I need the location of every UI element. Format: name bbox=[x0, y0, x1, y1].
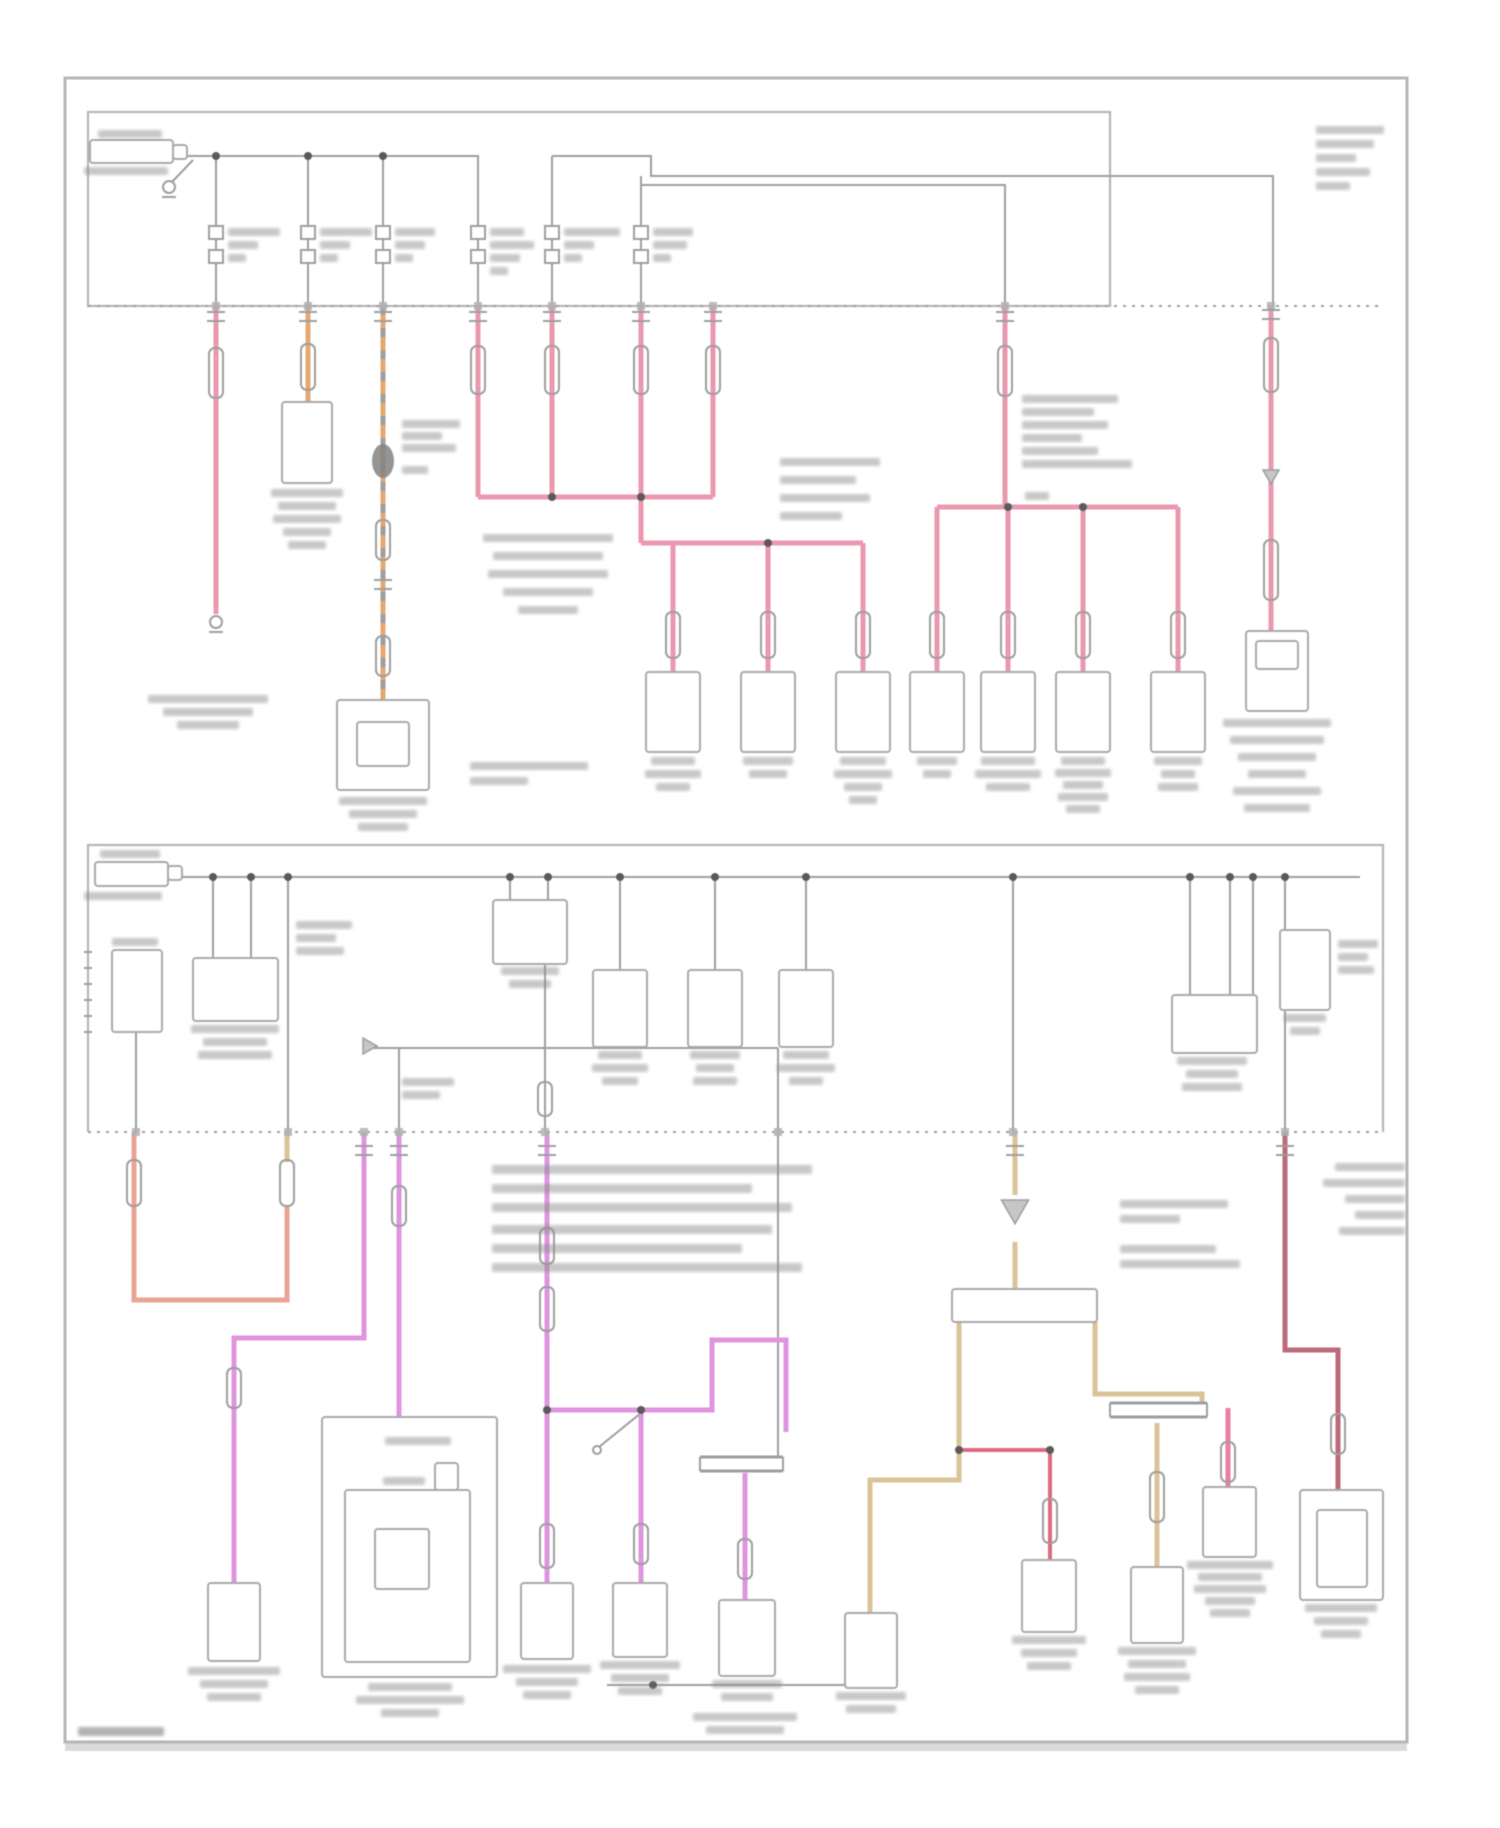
label-text-blurred bbox=[1025, 492, 1049, 500]
switch-contact-icon bbox=[593, 1446, 601, 1454]
label-text-blurred bbox=[653, 228, 693, 236]
fuse-icon bbox=[209, 250, 223, 263]
label-text-blurred bbox=[381, 1709, 439, 1717]
label-text-blurred bbox=[100, 850, 160, 858]
label-text-blurred bbox=[503, 1665, 591, 1673]
fuse-icon bbox=[376, 250, 390, 263]
schematic-wire-gray bbox=[641, 185, 1005, 306]
label-text-blurred bbox=[177, 721, 239, 729]
label-text-blurred bbox=[846, 1705, 896, 1713]
label-text-blurred bbox=[651, 757, 695, 765]
component-box bbox=[1256, 641, 1298, 669]
component-box bbox=[741, 672, 795, 752]
label-text-blurred bbox=[368, 1683, 452, 1691]
label-text-blurred bbox=[834, 770, 892, 778]
junction-dot bbox=[1046, 1446, 1054, 1454]
ground-icon bbox=[163, 181, 175, 193]
label-text-blurred bbox=[358, 823, 408, 831]
connector-arrow-icon bbox=[1001, 1200, 1028, 1224]
component-box bbox=[910, 672, 964, 752]
fuse-block-section-box bbox=[88, 112, 1110, 306]
label-text-blurred bbox=[492, 1263, 802, 1272]
label-text-blurred bbox=[493, 552, 603, 560]
component-box bbox=[375, 1529, 429, 1589]
label-text-blurred bbox=[191, 1025, 279, 1033]
label-text-blurred bbox=[600, 1661, 680, 1669]
schematic-wire-gray bbox=[599, 1413, 641, 1447]
junction-dot bbox=[209, 873, 217, 881]
component-box bbox=[493, 900, 567, 964]
label-text-blurred bbox=[296, 921, 352, 929]
terminal-mark bbox=[548, 302, 556, 310]
label-text-blurred bbox=[503, 588, 593, 596]
label-text-blurred bbox=[1022, 460, 1132, 468]
label-text-blurred bbox=[1022, 408, 1094, 416]
label-text-blurred bbox=[986, 783, 1030, 791]
label-text-blurred bbox=[320, 241, 350, 249]
terminal-mark bbox=[379, 302, 387, 310]
label-text-blurred bbox=[356, 1696, 464, 1704]
circuit-wire-magenta bbox=[641, 1340, 786, 1432]
label-text-blurred bbox=[490, 267, 508, 275]
terminal-mark bbox=[474, 302, 482, 310]
label-text-blurred bbox=[203, 1038, 267, 1046]
label-text-blurred bbox=[981, 757, 1035, 765]
label-text-blurred bbox=[207, 1693, 261, 1701]
component-box bbox=[112, 950, 162, 1032]
component-box bbox=[836, 672, 890, 752]
component-box bbox=[1056, 672, 1110, 752]
label-text-blurred bbox=[1022, 421, 1108, 429]
label-text-blurred bbox=[975, 770, 1041, 778]
component-box bbox=[845, 1613, 897, 1688]
label-text-blurred bbox=[777, 1064, 835, 1072]
label-text-blurred bbox=[349, 810, 417, 818]
connector-arrow-icon bbox=[1263, 470, 1279, 484]
label-text-blurred bbox=[1027, 1662, 1071, 1670]
junction-dot bbox=[1004, 503, 1012, 511]
label-text-blurred bbox=[296, 934, 336, 942]
junction-dot bbox=[616, 873, 624, 881]
label-text-blurred bbox=[470, 777, 528, 785]
component-box bbox=[646, 672, 700, 752]
label-text-blurred bbox=[1154, 757, 1202, 765]
component-box bbox=[208, 1583, 260, 1661]
label-text-blurred bbox=[296, 947, 344, 955]
label-text-blurred bbox=[1120, 1215, 1180, 1223]
label-text-blurred bbox=[1055, 769, 1111, 777]
label-text-blurred bbox=[849, 796, 877, 804]
circuit-wire-red bbox=[959, 1450, 1050, 1560]
connector-arrow-icon bbox=[363, 1038, 377, 1054]
label-text-blurred bbox=[1316, 140, 1374, 148]
label-text-blurred bbox=[1120, 1260, 1240, 1268]
circuit-wire-salmon bbox=[134, 1132, 287, 1300]
fuse-icon bbox=[301, 226, 315, 239]
label-text-blurred bbox=[385, 1437, 451, 1445]
label-text-blurred bbox=[518, 606, 578, 614]
component-box bbox=[95, 862, 168, 886]
terminal-mark bbox=[212, 302, 220, 310]
label-text-blurred bbox=[1120, 1245, 1216, 1253]
label-text-blurred bbox=[712, 1680, 782, 1688]
label-text-blurred bbox=[492, 1165, 812, 1174]
fuse-icon bbox=[471, 226, 485, 239]
label-text-blurred bbox=[645, 770, 701, 778]
label-text-blurred bbox=[1128, 1660, 1186, 1668]
label-text-blurred bbox=[690, 1051, 740, 1059]
label-text-blurred bbox=[1182, 1083, 1242, 1091]
terminal-mark bbox=[132, 1128, 140, 1136]
label-text-blurred bbox=[1305, 1604, 1377, 1612]
label-text-blurred bbox=[1198, 1573, 1262, 1581]
label-text-blurred bbox=[598, 1051, 642, 1059]
diagram-canvas bbox=[0, 0, 1500, 1828]
label-text-blurred bbox=[1022, 447, 1098, 455]
label-text-blurred bbox=[1323, 1179, 1405, 1187]
junction-dot bbox=[1249, 873, 1257, 881]
component-box bbox=[981, 672, 1035, 752]
label-text-blurred bbox=[516, 1678, 578, 1686]
label-text-blurred bbox=[278, 502, 336, 510]
junction-dot bbox=[802, 873, 810, 881]
label-text-blurred bbox=[198, 1051, 272, 1059]
component-box bbox=[1317, 1510, 1367, 1587]
junction-dot bbox=[637, 493, 645, 501]
circuit-wire-tan bbox=[1095, 1322, 1202, 1404]
terminal-mark bbox=[637, 302, 645, 310]
label-text-blurred bbox=[721, 1693, 773, 1701]
label-text-blurred bbox=[492, 1244, 742, 1253]
label-text-blurred bbox=[1355, 1211, 1405, 1219]
component-box bbox=[593, 970, 647, 1047]
component-box bbox=[173, 145, 187, 159]
label-text-blurred bbox=[1316, 154, 1356, 162]
terminal-mark bbox=[1267, 302, 1275, 310]
junction-dot bbox=[1079, 503, 1087, 511]
label-text-blurred bbox=[188, 1667, 280, 1675]
label-text-blurred bbox=[200, 1680, 268, 1688]
component-box bbox=[521, 1583, 573, 1659]
junction-dot bbox=[955, 1446, 963, 1454]
component-box bbox=[688, 970, 742, 1047]
fuse-icon bbox=[471, 250, 485, 263]
terminal-mark bbox=[1009, 1128, 1017, 1136]
label-text-blurred bbox=[228, 254, 246, 262]
label-text-blurred bbox=[1335, 1163, 1405, 1171]
junction-dot bbox=[711, 873, 719, 881]
label-text-blurred bbox=[1012, 1636, 1086, 1644]
circuit-wire-tan bbox=[870, 1450, 959, 1613]
label-text-blurred bbox=[483, 534, 613, 542]
component-box bbox=[1280, 930, 1330, 1010]
label-text-blurred bbox=[1338, 940, 1378, 948]
component-box bbox=[719, 1600, 775, 1676]
component-box bbox=[1131, 1567, 1183, 1643]
label-text-blurred bbox=[706, 1726, 784, 1734]
label-text-blurred bbox=[1290, 1027, 1320, 1035]
component-box bbox=[1172, 995, 1257, 1053]
component-box bbox=[168, 866, 182, 880]
junction-dot bbox=[1281, 873, 1289, 881]
label-text-blurred bbox=[490, 228, 524, 236]
junction-dot bbox=[212, 152, 220, 160]
inline-connector-icon bbox=[280, 1160, 294, 1206]
label-text-blurred bbox=[1314, 1617, 1368, 1625]
fuse-icon bbox=[634, 250, 648, 263]
terminal-mark bbox=[395, 1128, 403, 1136]
label-text-blurred bbox=[1223, 719, 1331, 727]
junction-dot bbox=[1186, 873, 1194, 881]
label-text-blurred bbox=[228, 228, 280, 236]
terminal-mark bbox=[774, 1128, 782, 1136]
component-box bbox=[282, 402, 332, 483]
junction-dot bbox=[548, 493, 556, 501]
label-text-blurred bbox=[148, 695, 268, 703]
label-text-blurred bbox=[1316, 182, 1350, 190]
label-text-blurred bbox=[1022, 395, 1118, 403]
label-text-blurred bbox=[492, 1184, 752, 1193]
label-text-blurred bbox=[653, 241, 687, 249]
label-text-blurred bbox=[836, 1692, 906, 1700]
label-text-blurred bbox=[1022, 434, 1082, 442]
label-text-blurred bbox=[402, 466, 428, 474]
component-box bbox=[193, 958, 278, 1021]
component-box bbox=[1151, 672, 1205, 752]
label-text-blurred bbox=[339, 797, 427, 805]
label-text-blurred bbox=[693, 1713, 797, 1721]
label-text-blurred bbox=[1248, 770, 1306, 778]
label-text-blurred bbox=[1338, 953, 1368, 961]
junction-dot bbox=[1226, 873, 1234, 881]
label-text-blurred bbox=[395, 254, 413, 262]
label-text-blurred bbox=[1066, 805, 1100, 813]
label-text-blurred bbox=[283, 528, 331, 536]
splice-blob bbox=[372, 444, 394, 478]
label-text-blurred bbox=[320, 228, 372, 236]
junction-dot bbox=[1009, 873, 1017, 881]
label-text-blurred bbox=[98, 130, 162, 138]
label-text-blurred bbox=[1063, 781, 1103, 789]
label-text-blurred bbox=[1158, 783, 1198, 791]
component-box bbox=[357, 722, 409, 766]
ground-icon bbox=[210, 616, 222, 628]
component-box bbox=[1022, 1560, 1076, 1632]
terminal-mark bbox=[360, 1128, 368, 1136]
label-text-blurred bbox=[163, 708, 253, 716]
label-text-blurred bbox=[743, 757, 793, 765]
label-text-blurred bbox=[383, 1477, 425, 1485]
label-text-blurred bbox=[564, 254, 582, 262]
component-box bbox=[435, 1463, 458, 1490]
label-text-blurred bbox=[1230, 736, 1324, 744]
terminal-mark bbox=[709, 302, 717, 310]
page-title-blurred bbox=[78, 1727, 164, 1736]
component-box bbox=[779, 970, 833, 1047]
label-text-blurred bbox=[749, 770, 787, 778]
terminal-mark bbox=[1281, 1128, 1289, 1136]
label-text-blurred bbox=[1339, 1227, 1405, 1235]
wiring-diagram-page bbox=[0, 0, 1500, 1828]
label-text-blurred bbox=[1187, 1561, 1273, 1569]
label-text-blurred bbox=[490, 241, 534, 249]
component-box bbox=[1203, 1487, 1256, 1557]
label-text-blurred bbox=[492, 1203, 792, 1212]
label-text-blurred bbox=[320, 254, 338, 262]
label-text-blurred bbox=[923, 770, 951, 778]
label-text-blurred bbox=[288, 541, 326, 549]
junction-dot bbox=[506, 873, 514, 881]
label-text-blurred bbox=[696, 1064, 734, 1072]
label-text-blurred bbox=[402, 1091, 440, 1099]
label-text-blurred bbox=[402, 444, 456, 452]
label-text-blurred bbox=[789, 1077, 823, 1085]
label-text-blurred bbox=[783, 1051, 829, 1059]
label-text-blurred bbox=[271, 489, 343, 497]
label-text-blurred bbox=[564, 241, 594, 249]
component-box bbox=[952, 1289, 1097, 1322]
schematic-wire-gray bbox=[172, 160, 193, 182]
junction-dot bbox=[543, 1406, 551, 1414]
label-text-blurred bbox=[1194, 1585, 1266, 1593]
label-text-blurred bbox=[602, 1077, 638, 1085]
terminal-mark bbox=[1001, 302, 1009, 310]
label-text-blurred bbox=[273, 515, 341, 523]
label-text-blurred bbox=[488, 570, 608, 578]
label-text-blurred bbox=[1238, 753, 1316, 761]
junction-dot bbox=[379, 152, 387, 160]
label-text-blurred bbox=[402, 432, 442, 440]
label-text-blurred bbox=[501, 967, 559, 975]
label-text-blurred bbox=[1124, 1673, 1190, 1681]
label-text-blurred bbox=[523, 1691, 571, 1699]
label-text-blurred bbox=[228, 241, 258, 249]
fuse-icon bbox=[545, 250, 559, 263]
label-text-blurred bbox=[1161, 770, 1195, 778]
label-text-blurred bbox=[395, 228, 435, 236]
label-text-blurred bbox=[780, 512, 842, 520]
junction-dot bbox=[284, 873, 292, 881]
label-text-blurred bbox=[1021, 1649, 1077, 1657]
junction-dot bbox=[764, 539, 772, 547]
terminal-mark bbox=[541, 1128, 549, 1136]
label-text-blurred bbox=[1316, 168, 1370, 176]
label-text-blurred bbox=[1316, 126, 1384, 134]
label-text-blurred bbox=[1244, 804, 1310, 812]
label-text-blurred bbox=[1120, 1200, 1228, 1208]
terminal-mark bbox=[304, 302, 312, 310]
label-text-blurred bbox=[395, 241, 425, 249]
label-text-blurred bbox=[1205, 1597, 1255, 1605]
label-text-blurred bbox=[780, 476, 856, 484]
label-text-blurred bbox=[1186, 1070, 1238, 1078]
fuse-icon bbox=[301, 250, 315, 263]
component-box bbox=[90, 140, 173, 163]
terminal-mark bbox=[284, 1128, 292, 1136]
label-text-blurred bbox=[693, 1077, 737, 1085]
label-text-blurred bbox=[402, 1078, 454, 1086]
label-text-blurred bbox=[780, 458, 880, 466]
label-text-blurred bbox=[656, 783, 690, 791]
label-text-blurred bbox=[1345, 1195, 1405, 1203]
label-text-blurred bbox=[490, 254, 520, 262]
label-text-blurred bbox=[592, 1064, 648, 1072]
label-text-blurred bbox=[1321, 1630, 1361, 1638]
junction-dot bbox=[304, 152, 312, 160]
label-text-blurred bbox=[1284, 1014, 1326, 1022]
schematic-wire-gray bbox=[187, 156, 478, 226]
component-box bbox=[613, 1583, 667, 1657]
label-text-blurred bbox=[112, 938, 158, 946]
label-text-blurred bbox=[653, 254, 671, 262]
label-text-blurred bbox=[1338, 966, 1374, 974]
label-text-blurred bbox=[1177, 1057, 1247, 1065]
fuse-icon bbox=[209, 226, 223, 239]
fuse-icon bbox=[545, 226, 559, 239]
junction-dot bbox=[247, 873, 255, 881]
fuse-icon bbox=[376, 226, 390, 239]
label-text-blurred bbox=[611, 1674, 669, 1682]
label-text-blurred bbox=[618, 1687, 662, 1695]
fuse-icon bbox=[634, 226, 648, 239]
label-text-blurred bbox=[917, 757, 957, 765]
label-text-blurred bbox=[844, 783, 882, 791]
label-text-blurred bbox=[84, 167, 168, 175]
label-text-blurred bbox=[470, 762, 588, 770]
label-text-blurred bbox=[1061, 757, 1105, 765]
junction-dot bbox=[637, 1406, 645, 1414]
label-text-blurred bbox=[1058, 793, 1108, 801]
junction-dot bbox=[544, 873, 552, 881]
label-text-blurred bbox=[402, 420, 460, 428]
label-text-blurred bbox=[509, 980, 551, 988]
label-text-blurred bbox=[840, 757, 886, 765]
label-text-blurred bbox=[564, 228, 620, 236]
label-text-blurred bbox=[1210, 1609, 1250, 1617]
label-text-blurred bbox=[1135, 1686, 1179, 1694]
label-text-blurred bbox=[492, 1225, 772, 1234]
label-text-blurred bbox=[780, 494, 870, 502]
label-text-blurred bbox=[1233, 787, 1321, 795]
label-text-blurred bbox=[84, 892, 162, 900]
label-text-blurred bbox=[1118, 1647, 1196, 1655]
